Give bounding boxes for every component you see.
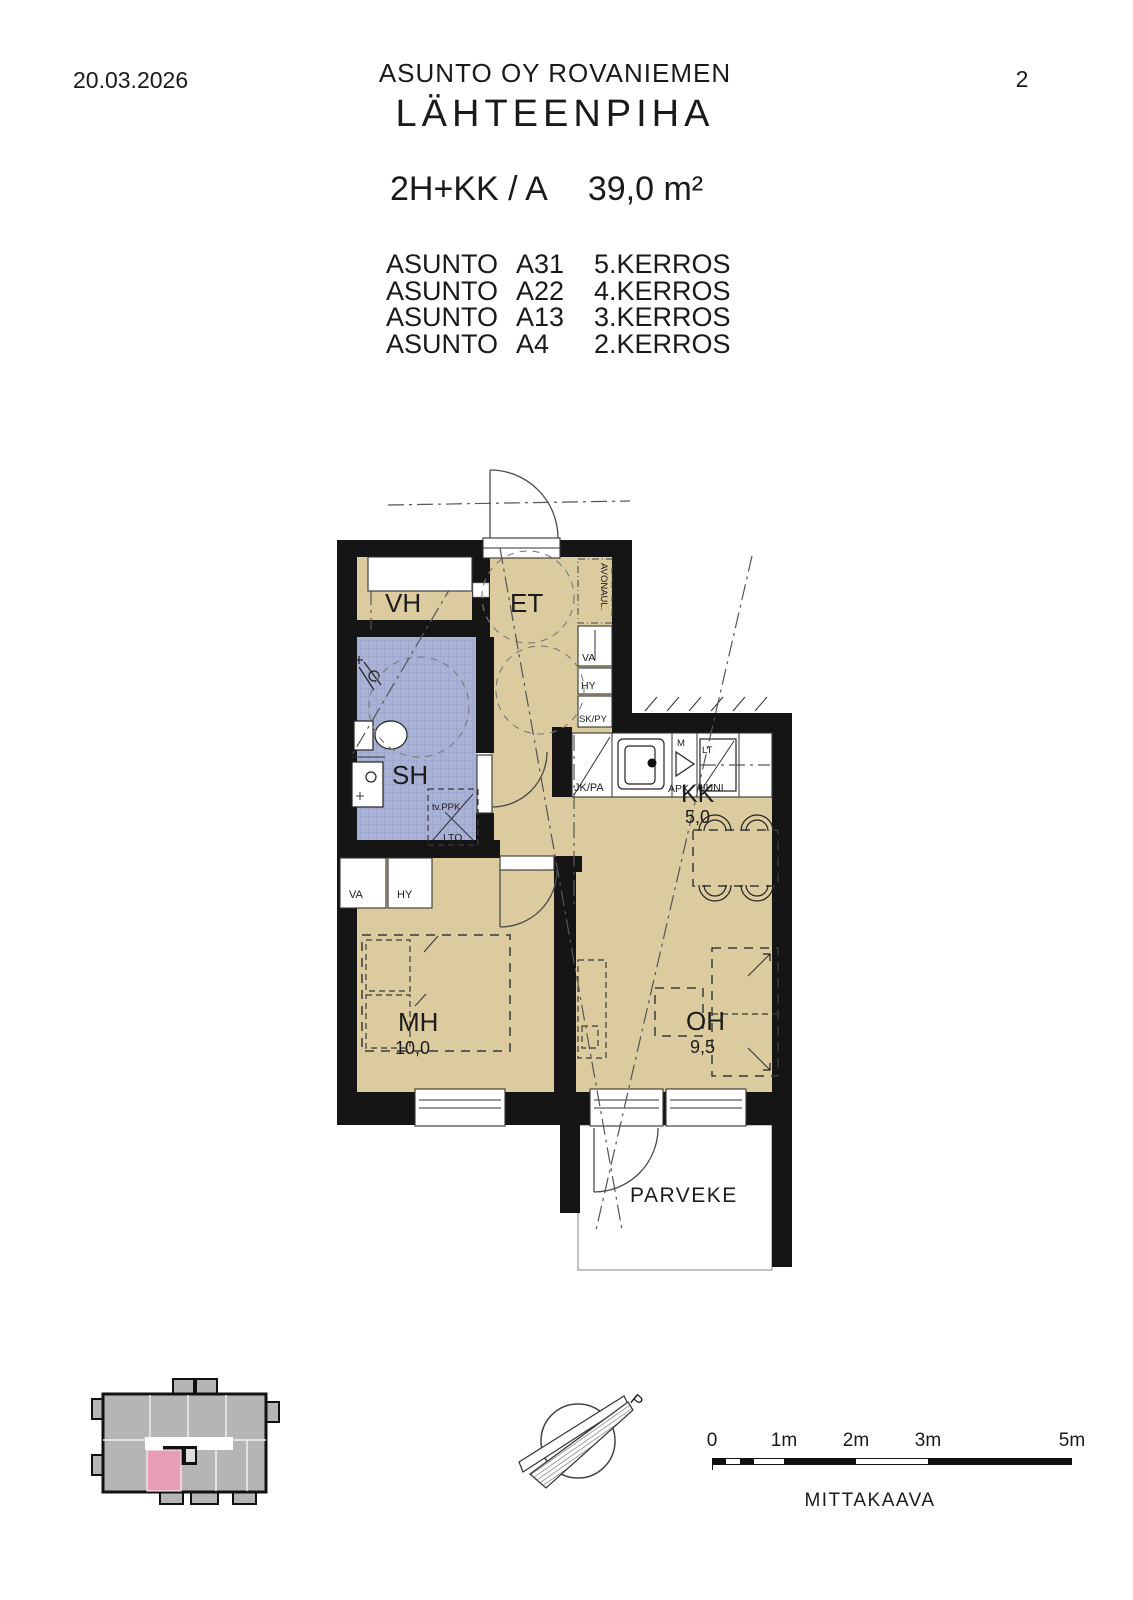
scale-tick-label: 5m bbox=[1059, 1430, 1085, 1452]
scale-bar-segment bbox=[856, 1458, 928, 1465]
label-tvppk: tv.PPK bbox=[432, 802, 461, 813]
floor-plan-page: 20.03.2026 ASUNTO OY ROVANIEMEN LÄHTEENP… bbox=[0, 0, 1133, 1600]
oh-window-2 bbox=[666, 1089, 746, 1126]
unit-label: ASUNTO bbox=[386, 331, 516, 358]
entrance-door-sill bbox=[483, 538, 560, 558]
label-skpy: SK/PY bbox=[579, 714, 608, 725]
scale-tick-label: 3m bbox=[915, 1430, 941, 1452]
building-locator-map bbox=[85, 1375, 290, 1510]
unit-code: A4 bbox=[516, 331, 594, 358]
label-jkpa: JK/PA bbox=[574, 782, 604, 794]
railing-ticks bbox=[645, 697, 767, 711]
scale-bar-segment bbox=[928, 1458, 1072, 1465]
label-lto: LTO bbox=[443, 832, 462, 844]
scale-bar-segment bbox=[784, 1458, 856, 1465]
scale-tick-label: 1m bbox=[771, 1430, 797, 1452]
label-uuni: UUNI bbox=[698, 782, 724, 794]
floor-plan-drawing: VH ET SH KK 5,0 MH 10,0 OH 9,5 PARVEKE A… bbox=[330, 450, 805, 1280]
project-name: LÄHTEENPIHA bbox=[320, 93, 790, 136]
unit-label: ASUNTO bbox=[386, 278, 516, 305]
unit-list: ASUNTO A31 5.KERROS ASUNTO A22 4.KERROS … bbox=[386, 251, 731, 357]
washbasin-symbol bbox=[352, 757, 385, 807]
north-compass-icon: P bbox=[512, 1370, 652, 1498]
apartment-type: 2H+KK / A bbox=[390, 170, 548, 209]
scale-tick-label: 2m bbox=[843, 1430, 869, 1452]
room-label-vh: VH bbox=[385, 588, 421, 618]
unit-floor: 2.KERROS bbox=[594, 331, 731, 358]
mh-window bbox=[415, 1089, 505, 1126]
unit-floor: 3.KERROS bbox=[594, 304, 731, 331]
room-label-sh: SH bbox=[392, 760, 428, 790]
label-apk: APK bbox=[668, 783, 689, 795]
highlighted-unit bbox=[147, 1450, 181, 1491]
room-area-oh: 9,5 bbox=[690, 1037, 715, 1057]
date: 20.03.2026 bbox=[73, 67, 188, 94]
scale-bar-segment bbox=[754, 1458, 784, 1465]
label-mh-hy: HY bbox=[397, 889, 413, 901]
unit-floor: 4.KERROS bbox=[594, 278, 731, 305]
scale-bar-segment bbox=[712, 1458, 726, 1465]
label-avonaul: AVONAUL. bbox=[598, 563, 609, 610]
housing-company-name: ASUNTO OY ROVANIEMEN bbox=[320, 58, 790, 89]
label-hall-va: VA bbox=[582, 652, 595, 664]
unit-floor: 5.KERROS bbox=[594, 251, 731, 278]
label-mh-va: VA bbox=[349, 889, 364, 901]
scale-bar: 0 1m 2m 3m 5m MITTAKAAVA bbox=[700, 1430, 1090, 1510]
cabinet-va-mh bbox=[340, 858, 386, 908]
room-area-mh: 10,0 bbox=[395, 1038, 430, 1058]
apartment-type-row: 2H+KK / A 39,0 m² bbox=[390, 170, 703, 209]
scale-bar-segment bbox=[740, 1458, 754, 1465]
apartment-area: 39,0 m² bbox=[588, 170, 703, 209]
toilet-symbol bbox=[354, 721, 407, 750]
label-lt: LT bbox=[702, 745, 713, 756]
unit-code: A22 bbox=[516, 278, 594, 305]
label-m: M bbox=[677, 738, 685, 749]
unit-code: A13 bbox=[516, 304, 594, 331]
room-label-parveke: PARVEKE bbox=[630, 1184, 738, 1207]
oh-window-1 bbox=[590, 1089, 663, 1126]
unit-code: A31 bbox=[516, 251, 594, 278]
entrance-door bbox=[490, 470, 558, 538]
page-number: 2 bbox=[1000, 66, 1044, 93]
unit-label: ASUNTO bbox=[386, 251, 516, 278]
room-label-et: ET bbox=[510, 588, 543, 618]
unit-label: ASUNTO bbox=[386, 304, 516, 331]
room-label-oh: OH bbox=[686, 1006, 725, 1036]
room-area-kk: 5,0 bbox=[685, 807, 710, 827]
label-hall-hy: HY bbox=[581, 680, 596, 692]
scale-tick-label: 0 bbox=[707, 1430, 718, 1452]
scale-bar-caption: MITTAKAAVA bbox=[785, 1490, 955, 1512]
header-block: ASUNTO OY ROVANIEMEN LÄHTEENPIHA bbox=[320, 58, 790, 136]
room-label-mh: MH bbox=[398, 1007, 438, 1037]
scale-bar-segment bbox=[726, 1458, 740, 1465]
vh-closet bbox=[368, 557, 472, 591]
